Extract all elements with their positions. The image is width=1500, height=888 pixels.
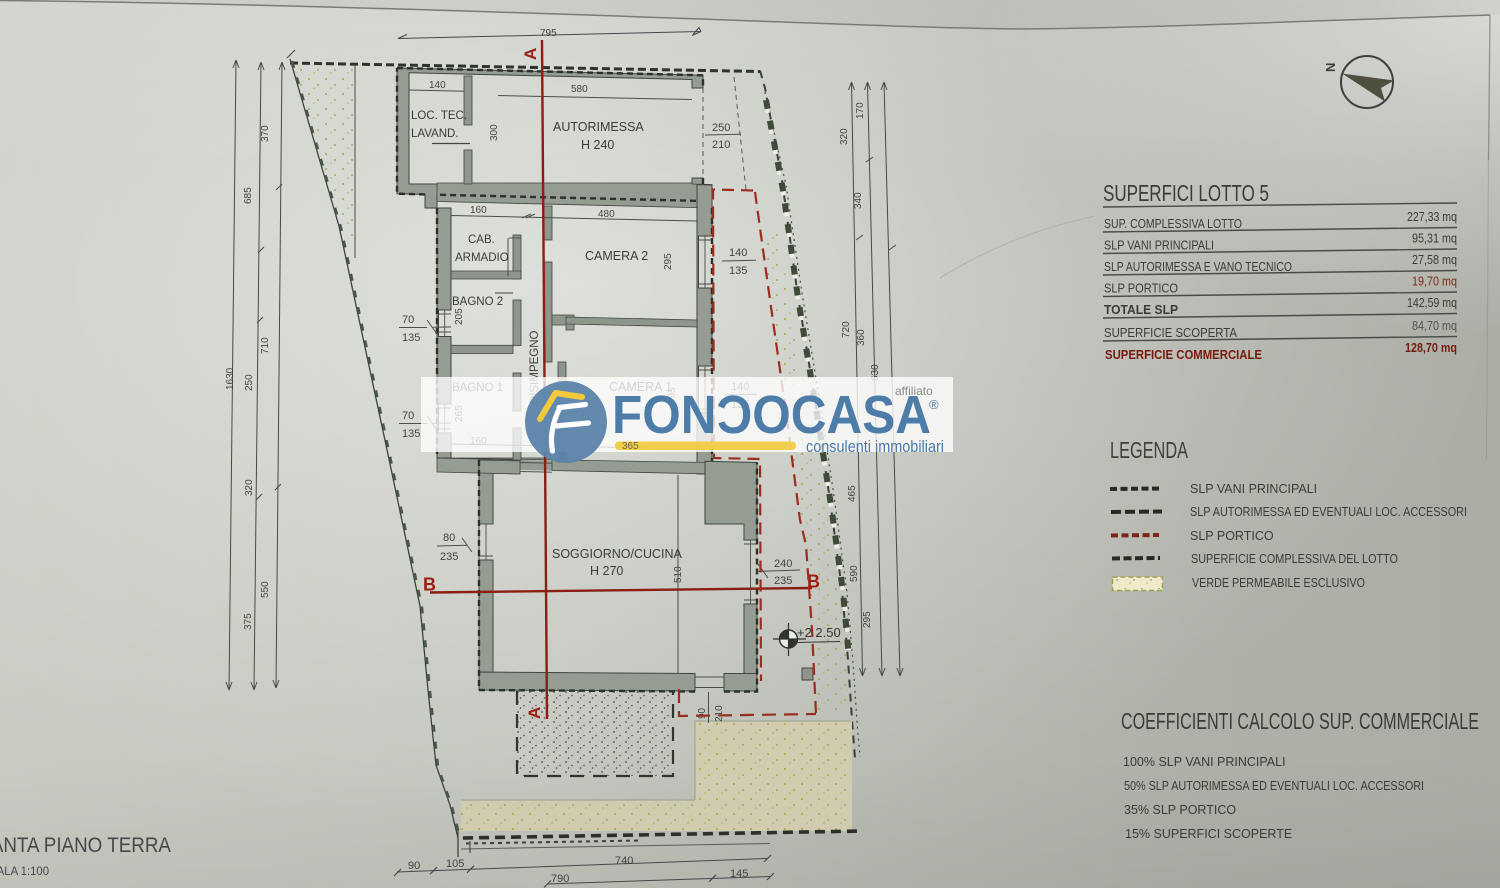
- svg-text:A: A: [521, 48, 540, 60]
- svg-text:SCALA 1:100: SCALA 1:100: [0, 866, 49, 878]
- svg-text:295: 295: [663, 253, 674, 270]
- svg-text:1630: 1630: [225, 367, 236, 390]
- svg-text:BAGNO 2: BAGNO 2: [452, 296, 503, 308]
- svg-text:795: 795: [540, 28, 557, 39]
- svg-text:70: 70: [402, 410, 414, 422]
- svg-text:B: B: [423, 575, 436, 595]
- svg-text:50% SLP AUTORIMESSA ED EVENTUA: 50% SLP AUTORIMESSA ED EVENTUALI LOC. AC…: [1124, 779, 1424, 793]
- svg-text:H 270: H 270: [590, 564, 623, 578]
- svg-text:+2 2.50: +2 2.50: [797, 625, 841, 640]
- svg-text:19,70 mq: 19,70 mq: [1412, 275, 1457, 289]
- svg-text:H 240: H 240: [581, 138, 614, 152]
- svg-text:740: 740: [615, 855, 633, 867]
- svg-text:affiliato: affiliato: [895, 384, 933, 398]
- svg-text:250: 250: [712, 122, 730, 134]
- svg-text:SLP AUTORIMESSA ED EVENTUALI L: SLP AUTORIMESSA ED EVENTUALI LOC. ACCESS…: [1190, 505, 1467, 519]
- svg-text:340: 340: [853, 192, 864, 209]
- svg-text:580: 580: [571, 84, 588, 95]
- svg-text:685: 685: [243, 187, 254, 204]
- svg-text:27,58 mq: 27,58 mq: [1412, 253, 1457, 267]
- svg-text:170: 170: [855, 102, 866, 119]
- svg-text:90: 90: [408, 860, 420, 872]
- svg-text:TOTALE SLP: TOTALE SLP: [1104, 303, 1178, 317]
- svg-text:135: 135: [402, 332, 420, 344]
- svg-text:FONƆOCASA: FONƆOCASA: [612, 385, 931, 445]
- svg-text:N: N: [1323, 63, 1338, 72]
- svg-text:205: 205: [454, 308, 465, 325]
- svg-text:VERDE PERMEABILE ESCLUSIVO: VERDE PERMEABILE ESCLUSIVO: [1192, 576, 1365, 590]
- svg-text:95,31 mq: 95,31 mq: [1412, 232, 1457, 246]
- svg-text:160: 160: [470, 205, 487, 216]
- svg-text:295: 295: [862, 611, 873, 628]
- svg-text:SUPERFICIE COMPLESSIVA DEL LOT: SUPERFICIE COMPLESSIVA DEL LOTTO: [1191, 552, 1398, 566]
- svg-text:®: ®: [929, 397, 939, 412]
- svg-text:142,59 mq: 142,59 mq: [1407, 296, 1457, 310]
- svg-text:140: 140: [729, 247, 747, 259]
- svg-text:consulenti immobiliari: consulenti immobiliari: [806, 438, 944, 456]
- svg-text:128,70 mq: 128,70 mq: [1405, 341, 1457, 355]
- svg-text:LAVAND.: LAVAND.: [411, 128, 459, 140]
- svg-text:35% SLP PORTICO: 35% SLP PORTICO: [1124, 803, 1236, 817]
- svg-text:SLP VANI PRINCIPALI: SLP VANI PRINCIPALI: [1190, 482, 1317, 496]
- svg-text:SLP VANI PRINCIPALI: SLP VANI PRINCIPALI: [1104, 239, 1214, 253]
- svg-text:AUTORIMESSA: AUTORIMESSA: [553, 120, 644, 134]
- svg-text:SUPERFICIE COMMERCIALE: SUPERFICIE COMMERCIALE: [1105, 348, 1262, 362]
- svg-text:LOC. TEC.: LOC. TEC.: [411, 110, 467, 122]
- svg-text:SLP PORTICO: SLP PORTICO: [1190, 529, 1274, 543]
- svg-text:100% SLP VANI PRINCIPALI: 100% SLP VANI PRINCIPALI: [1123, 755, 1286, 769]
- svg-text:SOGGIORNO/CUCINA: SOGGIORNO/CUCINA: [552, 547, 683, 561]
- svg-text:710: 710: [260, 337, 271, 354]
- svg-text:235: 235: [440, 551, 458, 563]
- svg-text:PIANTA PIANO TERRA: PIANTA PIANO TERRA: [0, 834, 171, 857]
- svg-text:COEFFICIENTI CALCOLO SUP. COMM: COEFFICIENTI CALCOLO SUP. COMMERCIALE: [1121, 708, 1479, 734]
- svg-text:210: 210: [712, 139, 730, 151]
- svg-text:90: 90: [697, 707, 708, 719]
- svg-text:SUPERFICIE SCOPERTA: SUPERFICIE SCOPERTA: [1104, 326, 1238, 340]
- svg-text:240: 240: [774, 558, 792, 570]
- svg-text:320: 320: [244, 479, 255, 496]
- svg-text:375: 375: [243, 613, 254, 630]
- svg-text:370: 370: [260, 125, 271, 142]
- svg-text:480: 480: [598, 209, 615, 220]
- svg-text:135: 135: [729, 265, 747, 277]
- svg-text:ARMADIO: ARMADIO: [455, 252, 509, 264]
- svg-text:227,33 mq: 227,33 mq: [1407, 210, 1457, 224]
- svg-text:SUPERFICI LOTTO 5: SUPERFICI LOTTO 5: [1103, 180, 1269, 206]
- svg-text:A: A: [525, 707, 544, 719]
- svg-text:790: 790: [551, 873, 569, 885]
- svg-text:465: 465: [847, 485, 858, 502]
- svg-text:235: 235: [774, 575, 792, 587]
- svg-text:SUP. COMPLESSIVA LOTTO: SUP. COMPLESSIVA LOTTO: [1104, 217, 1242, 231]
- svg-text:SLP PORTICO: SLP PORTICO: [1104, 282, 1178, 296]
- svg-text:300: 300: [489, 124, 500, 141]
- svg-text:135: 135: [402, 428, 420, 440]
- svg-text:365: 365: [622, 441, 639, 452]
- svg-text:CAB.: CAB.: [468, 234, 495, 246]
- svg-text:590: 590: [849, 565, 860, 582]
- svg-text:320: 320: [839, 128, 850, 145]
- svg-text:CAMERA 2: CAMERA 2: [585, 249, 648, 263]
- svg-text:LEGENDA: LEGENDA: [1110, 437, 1188, 463]
- svg-text:15% SUPERFICI SCOPERTE: 15% SUPERFICI SCOPERTE: [1125, 827, 1292, 841]
- svg-text:80: 80: [443, 532, 455, 544]
- svg-text:70: 70: [402, 314, 414, 326]
- svg-text:105: 105: [446, 858, 464, 870]
- svg-text:250: 250: [244, 374, 255, 391]
- svg-text:SLP AUTORIMESSA E VANO TECNICO: SLP AUTORIMESSA E VANO TECNICO: [1104, 260, 1292, 274]
- svg-text:140: 140: [429, 80, 446, 91]
- svg-text:210: 210: [714, 705, 725, 722]
- svg-text:510: 510: [673, 566, 684, 583]
- svg-text:360: 360: [856, 329, 867, 346]
- svg-text:550: 550: [260, 581, 271, 598]
- svg-text:720: 720: [841, 321, 852, 338]
- svg-text:84,70 mq: 84,70 mq: [1412, 319, 1457, 333]
- svg-text:145: 145: [730, 868, 748, 880]
